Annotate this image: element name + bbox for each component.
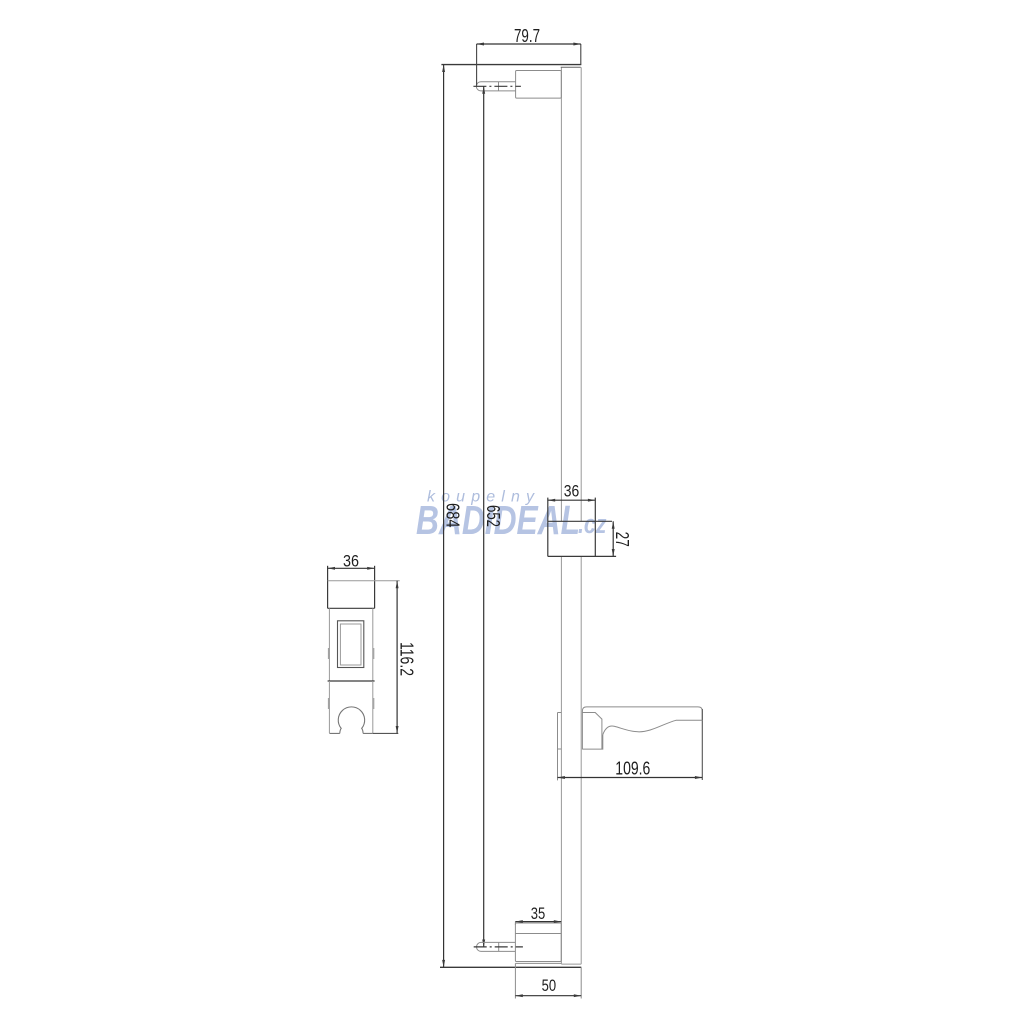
svg-text:27: 27 [612, 532, 632, 547]
svg-text:684: 684 [443, 503, 463, 528]
svg-text:50: 50 [542, 976, 557, 995]
svg-text:.cz: .cz [578, 509, 607, 539]
svg-text:79.7: 79.7 [514, 26, 540, 46]
svg-text:116.2: 116.2 [397, 642, 417, 676]
svg-text:652: 652 [483, 505, 503, 527]
svg-text:36: 36 [564, 482, 580, 501]
svg-text:109.6: 109.6 [615, 759, 650, 779]
svg-text:36: 36 [343, 551, 359, 570]
svg-text:35: 35 [531, 904, 546, 923]
